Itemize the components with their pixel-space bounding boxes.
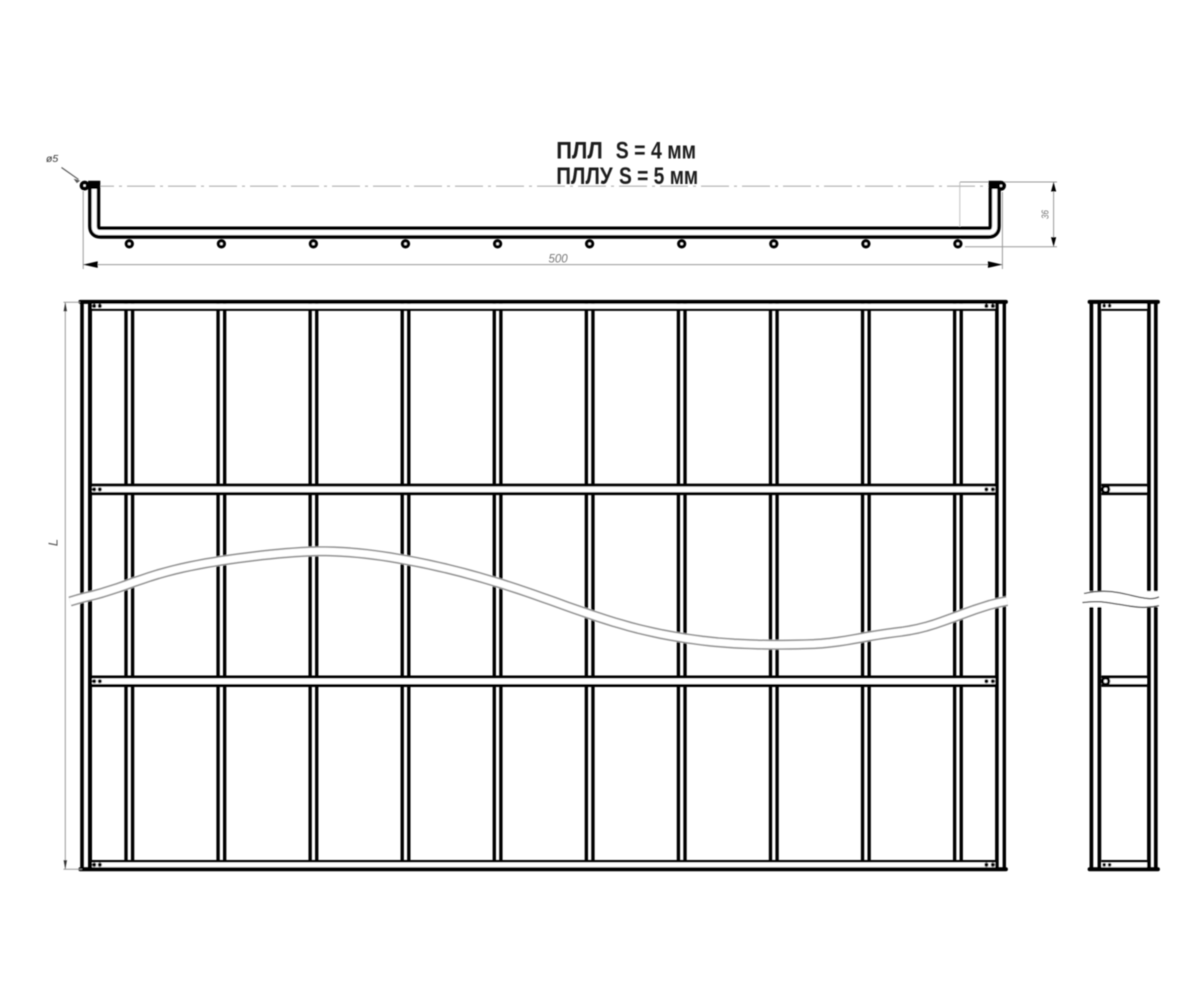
svg-text:S = 5 мм: S = 5 мм: [619, 163, 698, 190]
svg-text:ø5: ø5: [46, 153, 58, 165]
svg-text:36: 36: [1040, 210, 1052, 219]
svg-text:L: L: [46, 539, 61, 546]
svg-text:ПЛЛ: ПЛЛ: [556, 138, 603, 165]
svg-text:ПЛЛУ: ПЛЛУ: [556, 163, 613, 190]
svg-text:500: 500: [549, 254, 569, 266]
svg-text:S = 4 мм: S = 4 мм: [616, 138, 696, 165]
